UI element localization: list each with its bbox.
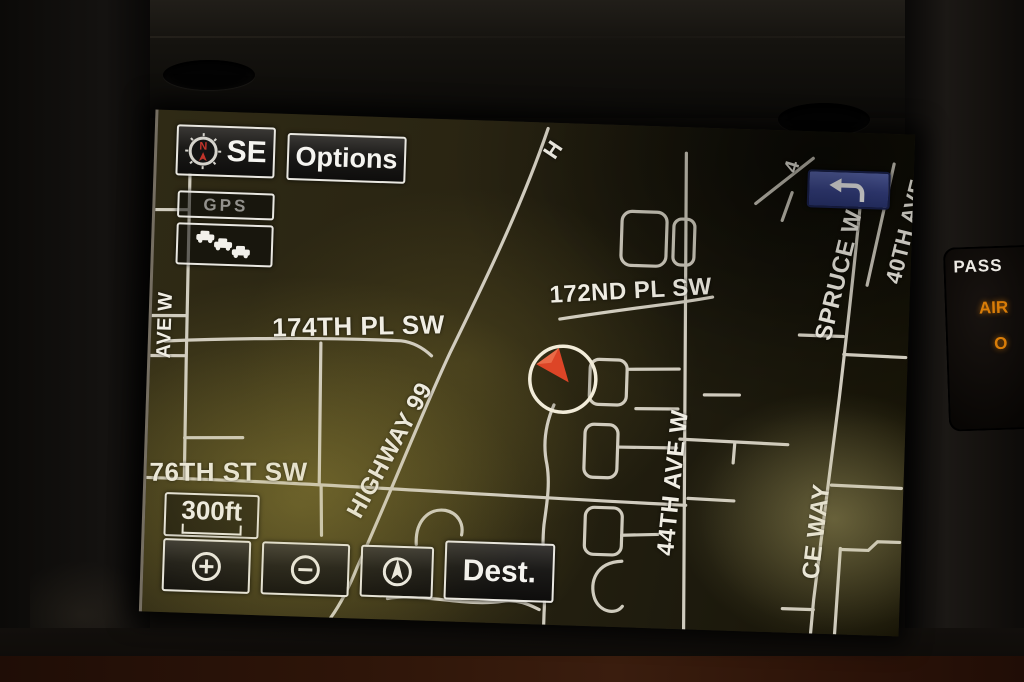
dashboard-seam	[0, 36, 1024, 38]
gps-indicator-label: GPS	[203, 195, 249, 216]
vehicle-position-marker	[524, 340, 602, 418]
map-scale-label: 300ft	[181, 497, 243, 525]
north-up-button[interactable]	[359, 545, 434, 599]
dest-button-label: Dest.	[462, 553, 536, 589]
route-return-button[interactable]	[807, 169, 891, 210]
traffic-indicator	[175, 222, 273, 267]
circle-plus-icon	[186, 545, 227, 586]
u-turn-arrow-icon	[826, 174, 871, 205]
airbag-air-label: AIR	[979, 298, 1009, 319]
street-label-174th-pl-sw: 174TH PL SW	[272, 309, 445, 343]
compass-n-icon: N	[184, 131, 223, 170]
map-scale-indicator: 300ft	[163, 492, 259, 539]
dash-vent-left	[163, 60, 255, 90]
dashboard-wood-trim	[0, 656, 1024, 682]
north-arrow-icon	[376, 551, 417, 592]
svg-text:N: N	[200, 140, 208, 152]
options-button[interactable]: Options	[286, 133, 406, 184]
gps-indicator: GPS	[177, 190, 275, 220]
airbag-off-label: O	[994, 334, 1008, 354]
map-screen[interactable]: H 172ND PL SW 174TH PL SW HIGHWAY 99 76T…	[139, 110, 915, 637]
dest-button[interactable]: Dest.	[443, 540, 555, 603]
street-label-ave-w-partial: AVE W	[153, 291, 178, 358]
street-label-76th-st-sw: 76TH ST SW	[149, 457, 307, 488]
zoom-out-button[interactable]	[261, 541, 351, 597]
options-button-label: Options	[295, 141, 398, 175]
circle-minus-icon	[285, 549, 326, 590]
compass-heading-button[interactable]: N SE	[175, 124, 276, 178]
passenger-airbag-indicator: PASS AIR O	[943, 244, 1024, 431]
zoom-in-button[interactable]	[162, 538, 252, 594]
airbag-pass-label: PASS	[953, 256, 1003, 278]
traffic-cars-icon	[193, 228, 256, 262]
compass-heading-label: SE	[226, 134, 267, 169]
map-scale-bracket	[181, 524, 241, 536]
dashboard-top-bezel	[0, 0, 1024, 118]
